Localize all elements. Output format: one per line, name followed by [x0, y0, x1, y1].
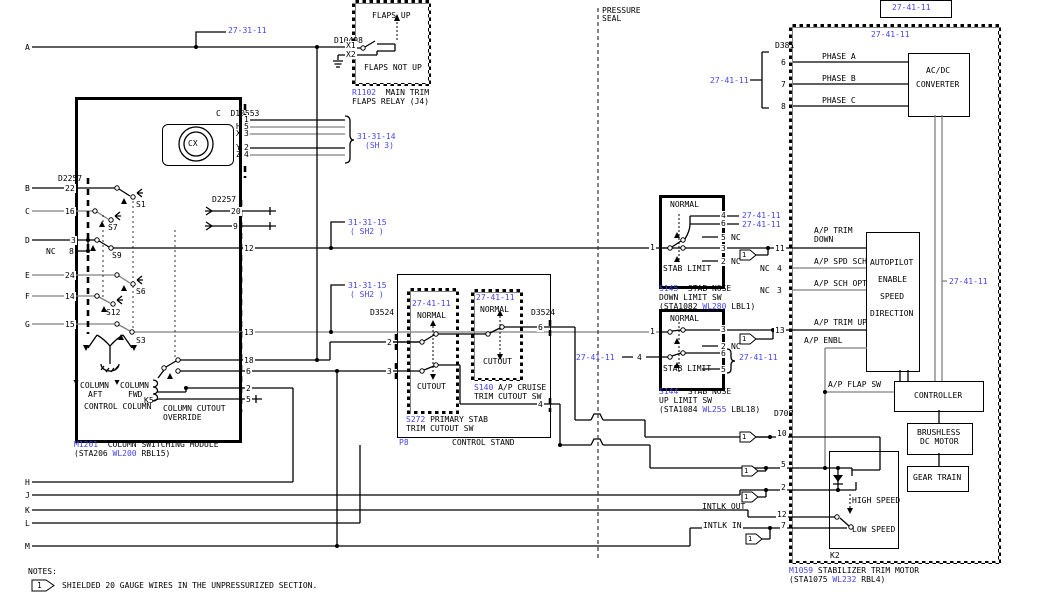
- pin-20: 20: [230, 207, 242, 216]
- ref-sh3: (SH 3): [365, 141, 394, 150]
- s145-name2: DOWN LIMIT SW: [659, 293, 722, 302]
- column-label-right: COLUMN: [120, 381, 149, 390]
- phase-c-label: PHASE C: [822, 96, 856, 105]
- intlk-in-label: INTLK IN: [702, 521, 743, 530]
- connector-d3524-left: D3524: [370, 308, 394, 317]
- s145-loc2: LBL1): [726, 302, 755, 311]
- cs-pin-2: 2: [386, 338, 393, 347]
- s145-pin-1: 1: [649, 243, 656, 252]
- acdc-label2: CONVERTER: [916, 80, 959, 89]
- ap-enbl-label: A/P ENBL: [804, 336, 843, 345]
- s140-name1: A/P CRUISE: [493, 383, 546, 392]
- row-letter-c: C: [25, 207, 30, 216]
- s144-pin-6: 6: [720, 349, 727, 358]
- s140-id: S140: [474, 383, 493, 392]
- autopilot-word2: ENABLE: [878, 275, 907, 284]
- s144-loc2: LBL18): [726, 405, 760, 414]
- wiring-diagram: A B C D E F G H J K L M 27-31-11 D10498 …: [0, 0, 1063, 595]
- k5-label: K5: [144, 396, 154, 405]
- drum-pin-4: 4: [243, 150, 250, 159]
- row-letter-d: D: [25, 236, 30, 245]
- switch-s9: S9: [112, 251, 122, 260]
- s144-pin-3: 3: [720, 325, 727, 334]
- d708-pin-12: 12: [776, 510, 788, 519]
- s144-stab-limit: STAB LIMIT: [663, 364, 711, 373]
- s144-pin-5: 5: [720, 365, 727, 374]
- ref-27-41-11-s145a: 27-41-11: [742, 211, 781, 220]
- module-loc2: RBL15): [137, 449, 171, 458]
- relay-id-line: R1102 MAIN TRIM: [352, 88, 429, 97]
- d708-pin-3: 3: [776, 286, 783, 295]
- cs-pin-6: 6: [537, 323, 544, 332]
- s145-stab-limit: STAB LIMIT: [663, 264, 711, 273]
- row-letter-k: K: [25, 506, 30, 515]
- module-name: COLUMN SWITCHING MODULE: [98, 440, 218, 449]
- gear-train-label: GEAR TRAIN: [913, 473, 961, 482]
- pin-8: 8: [68, 247, 75, 256]
- s272-normal: NORMAL: [417, 311, 446, 320]
- switch-s3: S3: [136, 336, 146, 345]
- d708-pin-7: 7: [780, 521, 787, 530]
- ap-down-label: DOWN: [814, 235, 833, 244]
- relay-name1: MAIN TRIM: [376, 88, 429, 97]
- d381-pin-8: 8: [780, 102, 787, 111]
- nc-3-label: NC: [760, 286, 770, 295]
- note-flag-1-pin10: 1: [742, 433, 746, 441]
- motor-id-line: M1059 STABILIZER TRIM MOTOR: [789, 566, 919, 575]
- motor-id: M1059: [789, 566, 813, 575]
- notes-title: NOTES:: [28, 567, 57, 576]
- ref-27-41-11-s144brace: 27-41-11: [739, 353, 778, 362]
- s145-pin-5: 5: [720, 233, 727, 242]
- s145-pin-3: 3: [720, 244, 727, 253]
- s272-cutout: CUTOUT: [417, 382, 446, 391]
- nc-4-label: NC: [760, 264, 770, 273]
- switch-s7: S7: [108, 223, 118, 232]
- row-letter-j: J: [25, 491, 30, 500]
- s145-nc-5: NC: [731, 233, 741, 242]
- connector-d2257-right: D2257: [212, 195, 236, 204]
- ref-27-41-11-s272: 27-41-11: [412, 299, 451, 308]
- autopilot-word3: SPEED: [880, 292, 904, 301]
- row-letter-g: G: [25, 320, 30, 329]
- pin-16: 16: [64, 207, 76, 216]
- s145-wl: WL280: [702, 302, 726, 311]
- s272-id-line: S272 PRIMARY STAB: [406, 415, 488, 424]
- cx-label: CX: [188, 139, 198, 148]
- motor-loc1: (STA1075: [789, 575, 832, 584]
- d381-pin-7: 7: [780, 80, 787, 89]
- ref-27-41-11-right: 27-41-11: [949, 277, 988, 286]
- pressure-seal-label2: SEAL: [602, 14, 621, 23]
- row-letter-a: A: [25, 43, 30, 52]
- d708-pin-5: 5: [780, 460, 787, 469]
- pin-9: 9: [232, 222, 239, 231]
- pin-12: 12: [243, 244, 255, 253]
- controller-label: CONTROLLER: [914, 391, 962, 400]
- ap-flap-sw-label: A/P FLAP SW: [828, 380, 881, 389]
- fwd-label: FWD: [128, 390, 142, 399]
- d708-pin-11: 11: [774, 244, 786, 253]
- note-flag-1-pin11: 1: [742, 251, 746, 259]
- s144-loc-line: (STA1084 WL255 LBL18): [659, 405, 760, 414]
- connector-d2257-left: D2257: [58, 174, 82, 183]
- drum-letter-x: X: [236, 129, 241, 138]
- row-letter-m: M: [25, 542, 30, 551]
- ref-27-41-11-titlebox: 27-41-11: [892, 3, 931, 12]
- nc-label: NC: [46, 247, 56, 256]
- row-letter-b: B: [25, 184, 30, 193]
- phase-b-label: PHASE B: [822, 74, 856, 83]
- row-letter-h: H: [25, 478, 30, 487]
- aft-label: AFT: [88, 390, 102, 399]
- s144-id: S144: [659, 387, 678, 396]
- autopilot-word1: AUTOPILOT: [870, 258, 913, 267]
- module-id-line: M1201 COLUMN SWITCHING MODULE: [74, 440, 219, 449]
- s272-name2: TRIM CUTOUT SW: [406, 424, 473, 433]
- drum-letter-z: Z: [236, 150, 241, 159]
- ap-sch-opt-label: A/P SCH OPT: [814, 279, 867, 288]
- s145-pin-2: 2: [720, 257, 727, 266]
- ref-31-31-15-a: 31-31-15: [348, 218, 387, 227]
- switch-s1: S1: [136, 200, 146, 209]
- module-loc1: (STA206: [74, 449, 113, 458]
- ref-27-41-11-s145b: 27-41-11: [742, 220, 781, 229]
- s140-name2: TRIM CUTOUT SW: [474, 392, 541, 401]
- ref-27-41-11-s140: 27-41-11: [476, 293, 515, 302]
- s144-name1: STAB NOSE: [678, 387, 731, 396]
- d708-pin-10: 10: [776, 429, 788, 438]
- ap-trim-up-label: A/P TRIM UP: [814, 318, 867, 327]
- d381-pin-6: 6: [780, 58, 787, 67]
- s272-id: S272: [406, 415, 425, 424]
- motor-wl: WL232: [832, 575, 856, 584]
- relay-id: R1102: [352, 88, 376, 97]
- ref-27-31-11: 27-31-11: [228, 26, 267, 35]
- pin-2: 2: [245, 384, 252, 393]
- ap-trim-label: A/P TRIM: [814, 226, 853, 235]
- flaps-up-label: FLAPS UP: [372, 11, 411, 20]
- s272-name1: PRIMARY STAB: [425, 415, 488, 424]
- relay-name2: FLAPS RELAY (J4): [352, 97, 429, 106]
- cs-pin-4: 4: [537, 400, 544, 409]
- ref-sh2-a: ( SH2 ): [350, 227, 384, 236]
- note-flag-1-pin2: 1: [744, 493, 748, 501]
- note-flag-1-pin5: 1: [744, 467, 748, 475]
- s144-wl: WL255: [702, 405, 726, 414]
- s144-nc-2: NC: [731, 342, 741, 351]
- connector-d381: D381: [775, 41, 794, 50]
- low-speed-label: LOW SPEED: [852, 525, 895, 534]
- note-flag-1-pin13: 1: [742, 335, 746, 343]
- notes-flag-1: 1: [37, 581, 42, 590]
- ref-27-41-11-d381: 27-41-11: [710, 76, 749, 85]
- pin-24: 24: [64, 271, 76, 280]
- s140-normal: NORMAL: [480, 305, 509, 314]
- control-column-label: CONTROL COLUMN: [84, 402, 151, 411]
- ref-31-31-14: 31-31-14: [357, 132, 396, 141]
- s145-name1: STAB NOSE: [678, 284, 731, 293]
- acdc-label1: AC/DC: [926, 66, 950, 75]
- motor-loc-line: (STA1075 WL232 RBL4): [789, 575, 885, 584]
- switch-s6: S6: [136, 287, 146, 296]
- ref-27-41-11-motortop: 27-41-11: [871, 30, 910, 39]
- ref-27-41-11-s144feed: 27-41-11: [576, 353, 615, 362]
- s144-normal: NORMAL: [670, 314, 699, 323]
- s144-pin-4: 4: [636, 353, 643, 362]
- motor-loc2: RBL4): [856, 575, 885, 584]
- pin-14: 14: [64, 292, 76, 301]
- connector-d10553: C D10553: [216, 109, 259, 118]
- s144-name2: UP LIMIT SW: [659, 396, 712, 405]
- note-flag-1-pin7: 1: [748, 535, 752, 543]
- pin-18: 18: [243, 356, 255, 365]
- s145-loc1: (STA1082: [659, 302, 702, 311]
- ref-31-31-15-b: 31-31-15: [348, 281, 387, 290]
- s140-id-line: S140 A/P CRUISE: [474, 383, 546, 392]
- p8-id: P8: [399, 438, 409, 447]
- s144-id-line: S144 STAB NOSE: [659, 387, 731, 396]
- pin-15: 15: [64, 320, 76, 329]
- pin-x1: X1: [345, 41, 357, 50]
- brushless-label1: BRUSHLESS: [917, 428, 960, 437]
- pin-6: 6: [245, 367, 252, 376]
- phase-a-label: PHASE A: [822, 52, 856, 61]
- row-letter-f: F: [25, 292, 30, 301]
- module-id: M1201: [74, 440, 98, 449]
- row-letter-e: E: [25, 271, 30, 280]
- s145-id: S145: [659, 284, 678, 293]
- pin-3: 3: [70, 236, 77, 245]
- pin-5: 5: [245, 395, 252, 404]
- ref-sh2-b: ( SH2 ): [350, 290, 384, 299]
- row-letter-l: L: [25, 519, 30, 528]
- k2-label: K2: [830, 551, 840, 560]
- intlk-out-label: INTLK OUT: [702, 502, 745, 511]
- column-label-left: COLUMN: [80, 381, 109, 390]
- s145-id-line: S145 STAB NOSE: [659, 284, 731, 293]
- pin-13: 13: [243, 328, 255, 337]
- s140-cutout: CUTOUT: [483, 357, 512, 366]
- drum-pin-3: 3: [243, 129, 250, 138]
- s144-loc1: (STA1084: [659, 405, 702, 414]
- flaps-not-up-label: FLAPS NOT UP: [364, 63, 422, 72]
- module-loc-line: (STA206 WL200 RBL15): [74, 449, 170, 458]
- high-speed-label: HIGH SPEED: [852, 496, 900, 505]
- autopilot-word4: DIRECTION: [870, 309, 913, 318]
- d708-pin-4: 4: [776, 264, 783, 273]
- d708-pin-2: 2: [780, 483, 787, 492]
- pin-x2: X2: [345, 50, 357, 59]
- pin-22: 22: [64, 184, 76, 193]
- s145-normal: NORMAL: [670, 200, 699, 209]
- switch-s12: S12: [106, 308, 120, 317]
- s145-nc-2: NC: [731, 257, 741, 266]
- module-wl: WL200: [113, 449, 137, 458]
- s145-loc-line: (STA1082 WL280 LBL1): [659, 302, 755, 311]
- brushless-label2: DC MOTOR: [920, 437, 959, 446]
- ap-spd-sch-label: A/P SPD SCH: [814, 257, 867, 266]
- control-stand-label: CONTROL STAND: [452, 438, 515, 447]
- s144-pin-1: 1: [649, 327, 656, 336]
- column-cutout-label: COLUMN CUTOUT: [163, 404, 226, 413]
- note-1-text: SHIELDED 20 GAUGE WIRES IN THE UNPRESSUR…: [62, 581, 317, 590]
- s145-pin-6: 6: [720, 219, 727, 228]
- motor-name: STABILIZER TRIM MOTOR: [813, 566, 919, 575]
- connector-d3524-right: D3524: [531, 308, 555, 317]
- override-label: OVERRIDE: [163, 413, 202, 422]
- d708-pin-13: 13: [774, 326, 786, 335]
- connector-d708: D708: [774, 409, 793, 418]
- cs-pin-3: 3: [386, 367, 393, 376]
